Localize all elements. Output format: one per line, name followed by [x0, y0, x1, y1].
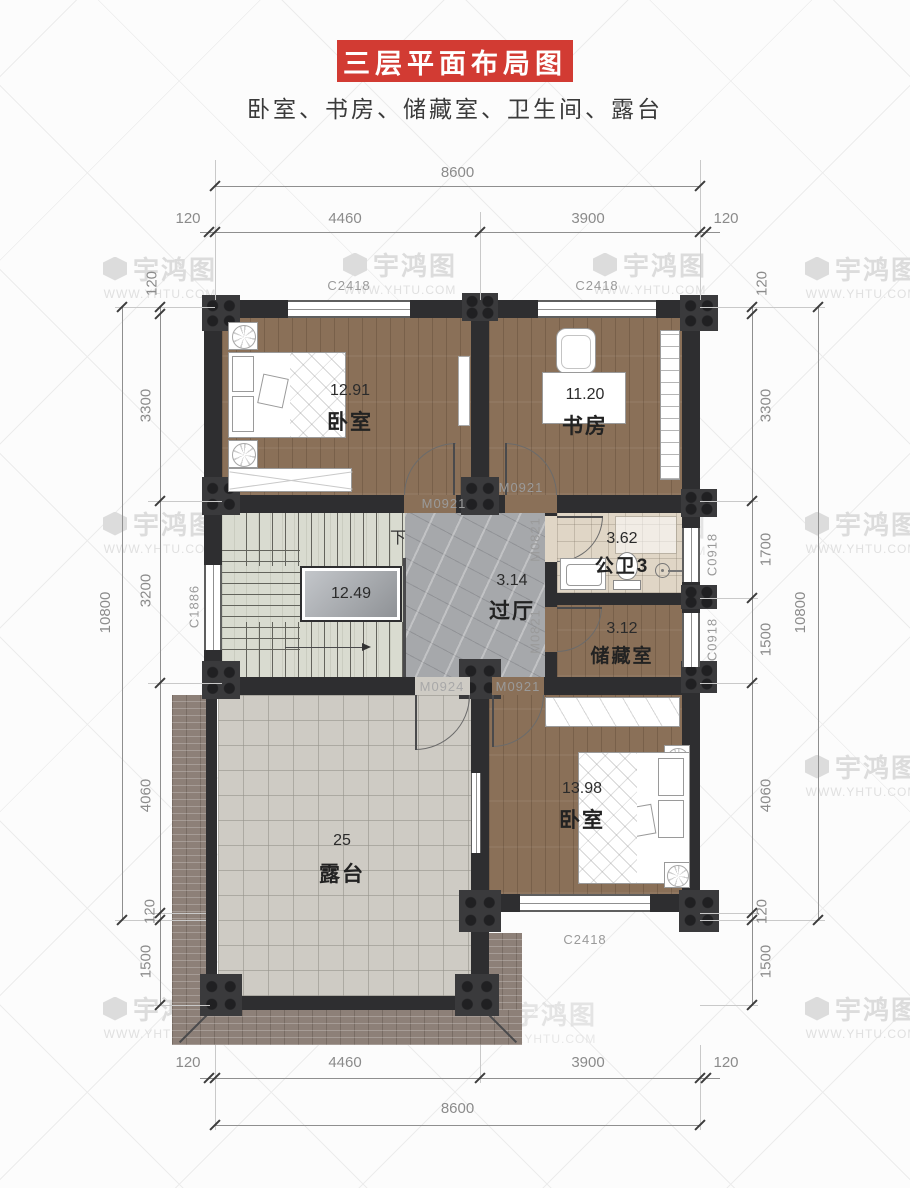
bench [228, 468, 352, 492]
dim-right-seg: 1500 [758, 605, 775, 675]
watermark: 宇鸿图WWW.YHTU.COM [767, 748, 910, 799]
page-title-text: 三层平面布局图 [343, 42, 567, 81]
bookshelf [660, 330, 680, 480]
room-name-label: 过厅 [472, 595, 552, 625]
shower-arm [668, 570, 682, 572]
column [679, 890, 719, 932]
room-name-label: 露台 [302, 858, 382, 888]
wall-bedroom1-study-divider [471, 318, 489, 495]
room-name-label: 卧室 [310, 406, 390, 436]
column [200, 974, 242, 1016]
window-label: C1886 [187, 572, 202, 642]
door-label: M0921 [409, 496, 479, 511]
dim-bottom-total: 8600 [415, 1100, 500, 1117]
room-name-label: 书房 [545, 410, 625, 440]
dim-bottom-seg: 120 [168, 1054, 208, 1071]
door-gap-bath [545, 516, 557, 562]
door-leaf-storage [557, 607, 602, 609]
dim-top-seg: 3900 [548, 210, 628, 227]
room-area-label: 13.98 [542, 780, 622, 798]
door-label: M0921 [483, 679, 553, 694]
dim-left-seg: 3200 [138, 556, 155, 626]
window-stairwell [204, 565, 222, 650]
wall-terrace-parapet-bottom [206, 996, 496, 1010]
watermark-logo-icon [103, 257, 127, 281]
window-label: C0918 [705, 520, 720, 590]
dim-left-seg: 120 [144, 249, 161, 319]
dim-right-seg: 1700 [758, 515, 775, 585]
stair-down-label: 下 [378, 524, 418, 548]
stair-treads-winder [222, 540, 300, 650]
window-label: C2418 [309, 278, 389, 293]
dim-left-total: 10800 [97, 575, 114, 650]
pillow [658, 758, 684, 796]
watermark: 宇鸿图WWW.YHTU.COM [767, 250, 910, 301]
room-name-label: 储藏室 [572, 641, 672, 668]
dim-left-seg: 1500 [138, 927, 155, 997]
door-leaf-bath [557, 516, 603, 518]
column [681, 489, 717, 517]
dim-right-seg: 3300 [758, 371, 775, 441]
wall-niche [458, 356, 470, 426]
watermark-logo-icon [343, 253, 367, 277]
room-name-label: 卧室 [542, 804, 622, 834]
floor-plan-page: 三层平面布局图 卧室、书房、储藏室、卫生间、露台 宇鸿图WWW.YHTU.COM… [0, 0, 910, 1188]
window-storage [682, 613, 700, 667]
room-area-label: 3.12 [582, 620, 662, 638]
pillow [232, 356, 254, 392]
watermark-logo-icon [805, 997, 829, 1021]
window-study [538, 300, 656, 318]
pillow [232, 396, 254, 432]
fan-decor-icon [232, 325, 256, 349]
column [455, 974, 499, 1016]
fan-decor-icon [667, 865, 689, 887]
stair-path-line [285, 647, 363, 648]
window-bedroom2 [520, 894, 650, 912]
dim-top-seg: 120 [706, 210, 746, 227]
dim-top-seg: 4460 [305, 210, 385, 227]
window-bath [682, 528, 700, 582]
door-leaf-terrace [415, 695, 417, 750]
page-subtitle: 卧室、书房、储藏室、卫生间、露台 [0, 90, 910, 124]
dim-left-seg: 4060 [138, 761, 155, 831]
toilet-tank [613, 580, 641, 590]
page-title: 三层平面布局图 [337, 40, 573, 82]
stair-path-arrow-icon [362, 643, 371, 651]
watermark-logo-icon [805, 257, 829, 281]
window-label: C2418 [545, 932, 625, 947]
watermark-logo-icon [593, 253, 617, 277]
stair-void: 12.49 [300, 566, 402, 622]
column [202, 661, 240, 699]
door-leaf-bedroom2 [492, 695, 494, 747]
dim-right-total: 10800 [792, 575, 809, 650]
dim-right-seg: 120 [754, 249, 771, 319]
watermark: 宇鸿图WWW.YHTU.COM [767, 505, 910, 556]
dim-bottom-seg: 3900 [548, 1054, 628, 1071]
room-area-label: 3.14 [472, 572, 552, 590]
wardrobe [545, 697, 680, 727]
door-label: M0921 [486, 480, 556, 495]
dim-right-seg: 4060 [758, 761, 775, 831]
window-bedroom2-side [471, 773, 481, 853]
watermark-logo-icon [103, 997, 127, 1021]
door-leaf-bedroom1 [453, 443, 455, 495]
dim-bottom-seg: 4460 [305, 1054, 385, 1071]
watermark-logo-icon [805, 755, 829, 779]
pillow [658, 800, 684, 838]
dim-right-seg: 1500 [758, 927, 775, 997]
dim-bottom-seg: 120 [706, 1054, 746, 1071]
room-area-label: 11.20 [545, 386, 625, 404]
door-label: M0924 [407, 679, 477, 694]
column [459, 890, 501, 932]
room-area-label: 12.91 [310, 382, 390, 400]
dim-top-seg: 120 [168, 210, 208, 227]
watermark-logo-icon [805, 512, 829, 536]
watermark-logo-icon [103, 512, 127, 536]
room-area-label: 25 [302, 832, 382, 850]
column [680, 295, 718, 331]
door-label: M0821 [528, 505, 543, 575]
room-name-label: 公卫3 [582, 551, 662, 578]
room-area-label: 3.62 [582, 530, 662, 548]
window-label: C2418 [557, 278, 637, 293]
dim-top-total: 8600 [415, 164, 500, 181]
stair-area-label: 12.49 [305, 571, 397, 617]
window-bedroom1 [288, 300, 410, 318]
desk-chair [556, 328, 596, 374]
window-label: C0918 [705, 605, 720, 675]
watermark: 宇鸿图WWW.YHTU.COM [767, 990, 910, 1041]
dim-left-seg: 3300 [138, 371, 155, 441]
wall-terrace-parapet-left [206, 695, 217, 996]
fan-decor-icon [232, 443, 256, 467]
wall-bath-storage-divider [545, 593, 700, 605]
